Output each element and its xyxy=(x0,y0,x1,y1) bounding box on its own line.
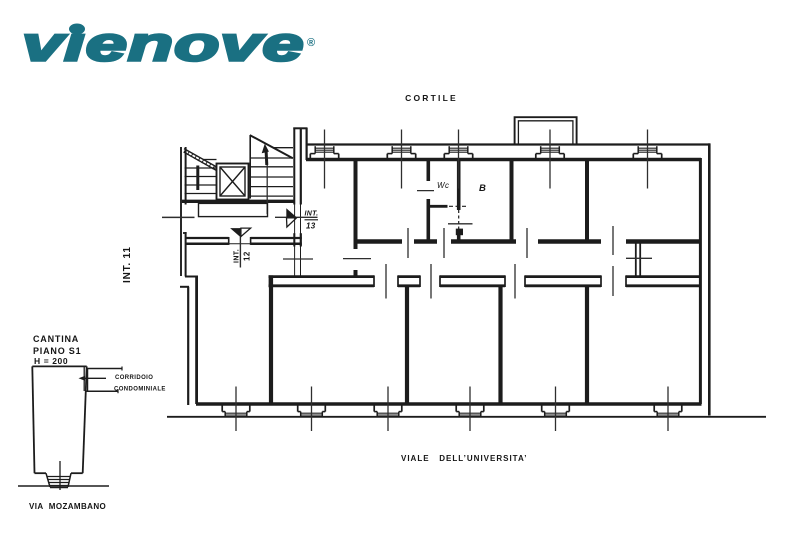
svg-text:CORRIDOIO: CORRIDOIO xyxy=(115,375,153,381)
svg-text:12: 12 xyxy=(243,251,252,261)
svg-text:PIANO S1: PIANO S1 xyxy=(33,346,81,356)
svg-text:VIA MOZAMBANO: VIA MOZAMBANO xyxy=(29,502,106,511)
svg-text:INT.: INT. xyxy=(234,249,241,263)
svg-text:®: ® xyxy=(307,37,315,49)
svg-text:CORTILE: CORTILE xyxy=(405,93,458,103)
svg-text:INT.: INT. xyxy=(305,211,319,218)
svg-text:CONDOMINIALE: CONDOMINIALE xyxy=(114,387,166,393)
svg-text:Wc: Wc xyxy=(437,181,450,190)
svg-text:VIALE DELL’UNIVERSITA’: VIALE DELL’UNIVERSITA’ xyxy=(401,454,528,463)
svg-text:CANTINA: CANTINA xyxy=(33,334,79,344)
svg-text:vıenove: vıenove xyxy=(22,18,304,72)
svg-text:H = 200: H = 200 xyxy=(34,356,68,366)
svg-text:B: B xyxy=(479,183,486,194)
svg-text:13: 13 xyxy=(306,222,316,231)
svg-text:INT. 11: INT. 11 xyxy=(122,246,133,283)
